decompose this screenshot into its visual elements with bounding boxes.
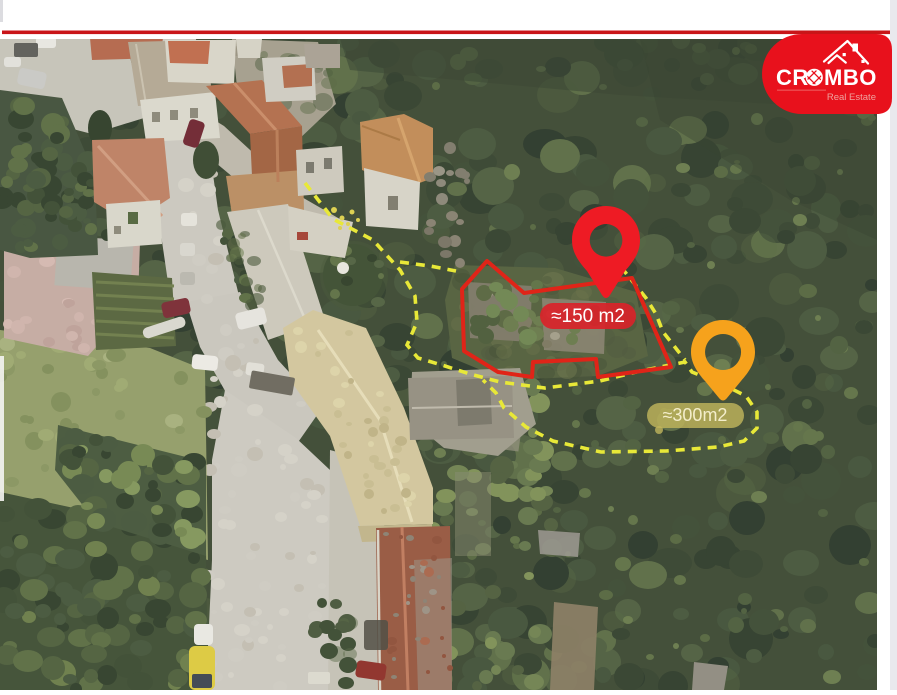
svg-text:MBO: MBO xyxy=(824,65,877,90)
svg-text:CR: CR xyxy=(776,65,809,90)
svg-text:Real Estate: Real Estate xyxy=(827,92,876,103)
svg-text:≈300m2: ≈300m2 xyxy=(663,405,728,425)
svg-text:≈150 m2: ≈150 m2 xyxy=(551,306,625,327)
